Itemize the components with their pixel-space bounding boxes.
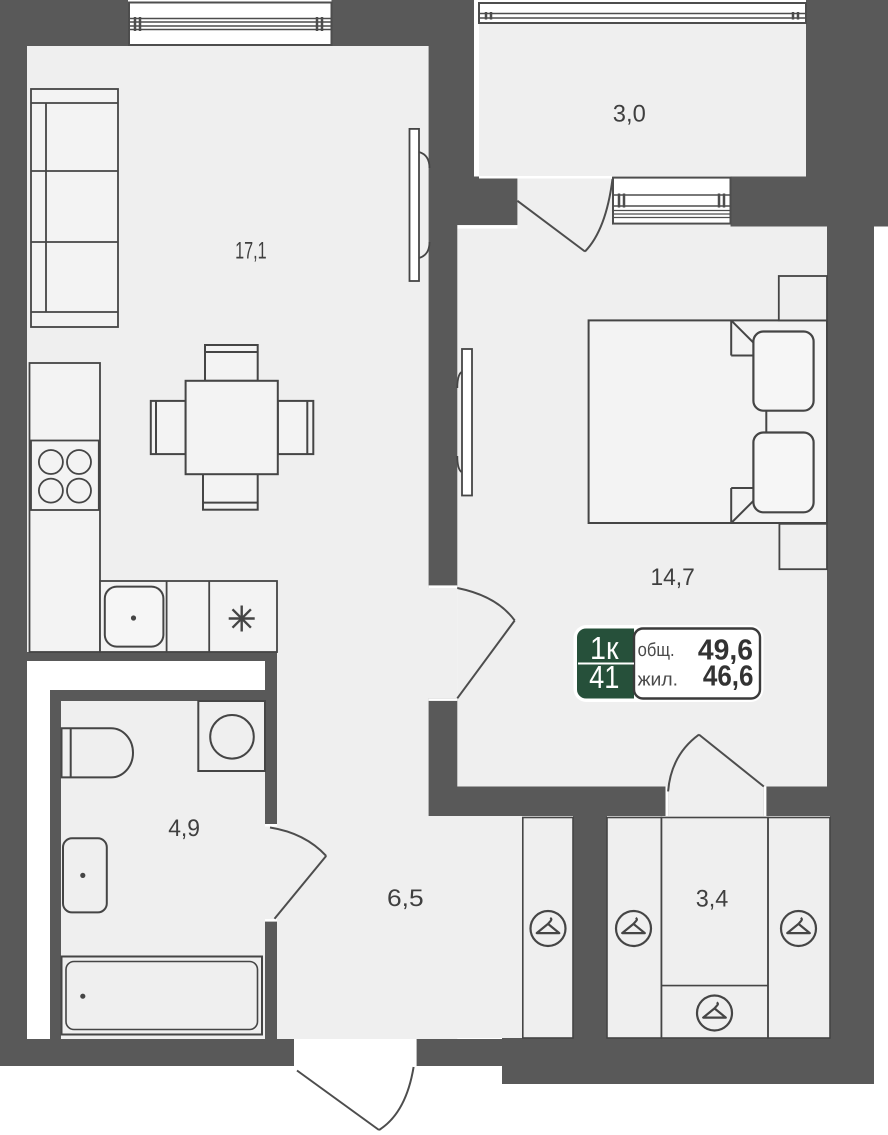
svg-text:41: 41 bbox=[589, 659, 619, 695]
svg-text:жил.: жил. bbox=[638, 669, 678, 690]
svg-text:46,6: 46,6 bbox=[703, 660, 754, 692]
svg-text:14,7: 14,7 bbox=[650, 564, 694, 591]
svg-text:4,9: 4,9 bbox=[168, 815, 200, 842]
svg-text:6,5: 6,5 bbox=[387, 885, 424, 912]
svg-text:3,4: 3,4 bbox=[696, 886, 729, 913]
svg-text:общ.: общ. bbox=[638, 640, 675, 661]
svg-text:17,1: 17,1 bbox=[235, 237, 267, 264]
svg-text:3,0: 3,0 bbox=[613, 100, 646, 127]
